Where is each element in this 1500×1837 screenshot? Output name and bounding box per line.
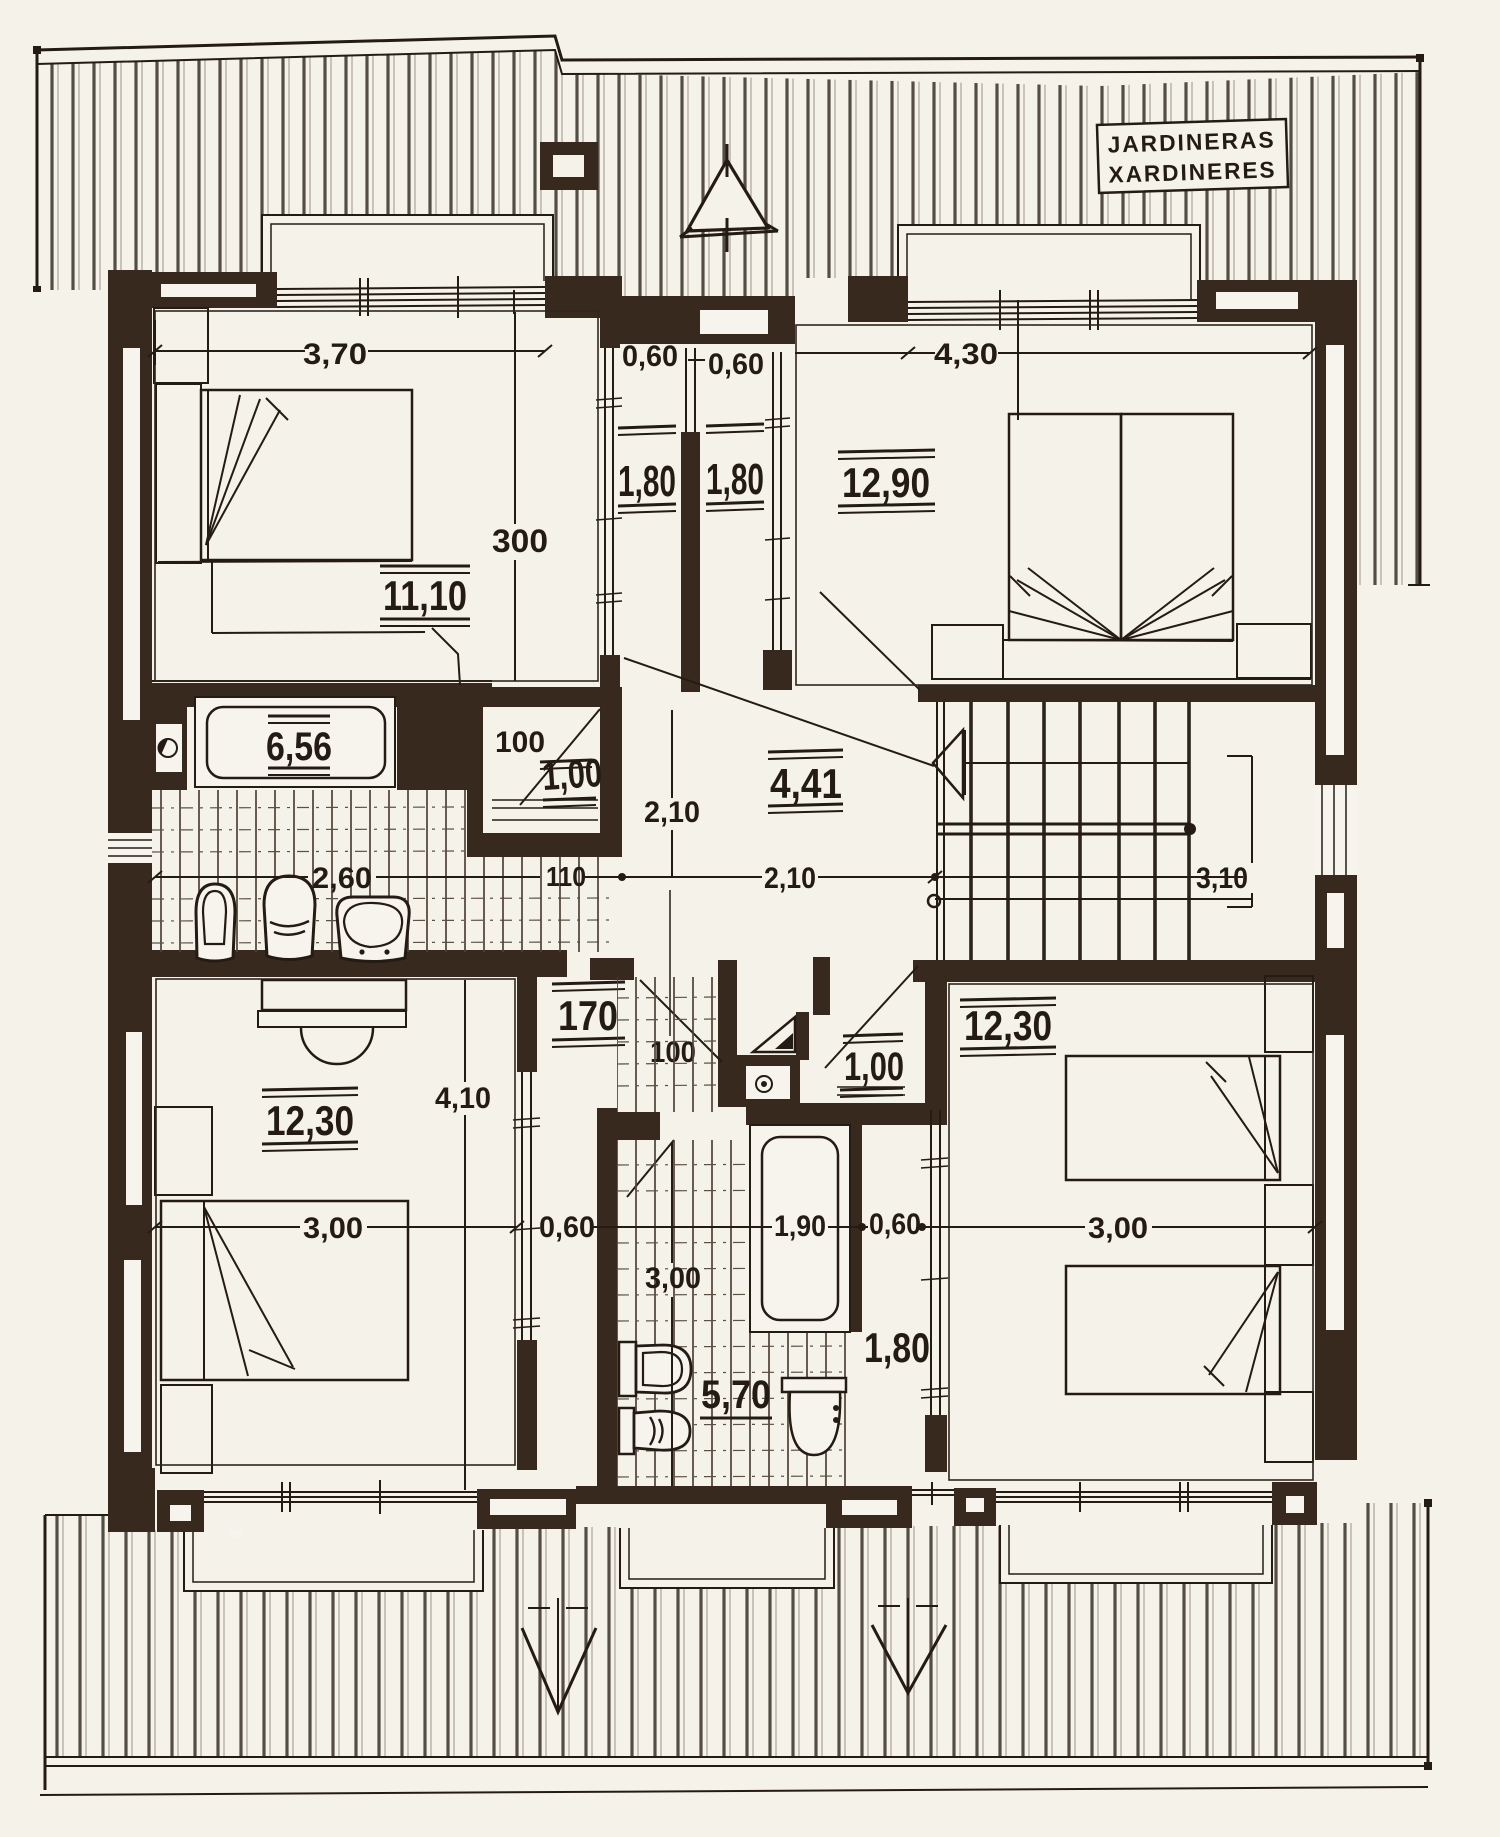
svg-text:1,90: 1,90 <box>774 1210 826 1243</box>
svg-text:0,60: 0,60 <box>539 1211 595 1244</box>
svg-text:1,00: 1,00 <box>844 1045 904 1089</box>
svg-text:4,41: 4,41 <box>770 760 842 807</box>
svg-text:0,60: 0,60 <box>869 1208 921 1241</box>
svg-text:0,60: 0,60 <box>622 340 678 373</box>
svg-text:XARDINERES: XARDINERES <box>1108 156 1277 187</box>
svg-text:3,70: 3,70 <box>303 338 367 371</box>
svg-text:1,80: 1,80 <box>618 457 676 506</box>
svg-text:1,80: 1,80 <box>706 455 764 504</box>
svg-text:12,90: 12,90 <box>842 459 930 506</box>
svg-text:2,60: 2,60 <box>312 862 372 895</box>
svg-text:170: 170 <box>558 992 618 1039</box>
svg-text:3,00: 3,00 <box>303 1212 363 1245</box>
svg-text:5,70: 5,70 <box>701 1373 771 1417</box>
svg-text:11,10: 11,10 <box>383 572 467 619</box>
svg-text:4,30: 4,30 <box>934 338 998 371</box>
svg-text:1,00: 1,00 <box>541 751 604 799</box>
svg-text:2,10: 2,10 <box>764 862 816 895</box>
svg-text:110: 110 <box>546 861 586 892</box>
svg-text:3,10: 3,10 <box>1196 862 1248 895</box>
svg-text:JARDINERAS: JARDINERAS <box>1107 126 1276 157</box>
svg-text:0,60: 0,60 <box>708 348 764 381</box>
svg-text:6,56: 6,56 <box>266 725 332 769</box>
svg-text:3,00: 3,00 <box>1088 1212 1148 1245</box>
svg-text:2,10: 2,10 <box>644 796 700 829</box>
svg-text:3,00: 3,00 <box>645 1262 701 1295</box>
svg-text:1,80: 1,80 <box>864 1324 930 1371</box>
svg-text:4,10: 4,10 <box>435 1082 491 1115</box>
svg-text:12,30: 12,30 <box>266 1097 354 1144</box>
svg-text:300: 300 <box>492 523 548 559</box>
svg-text:12,30: 12,30 <box>964 1002 1052 1049</box>
svg-text:100: 100 <box>495 726 545 759</box>
